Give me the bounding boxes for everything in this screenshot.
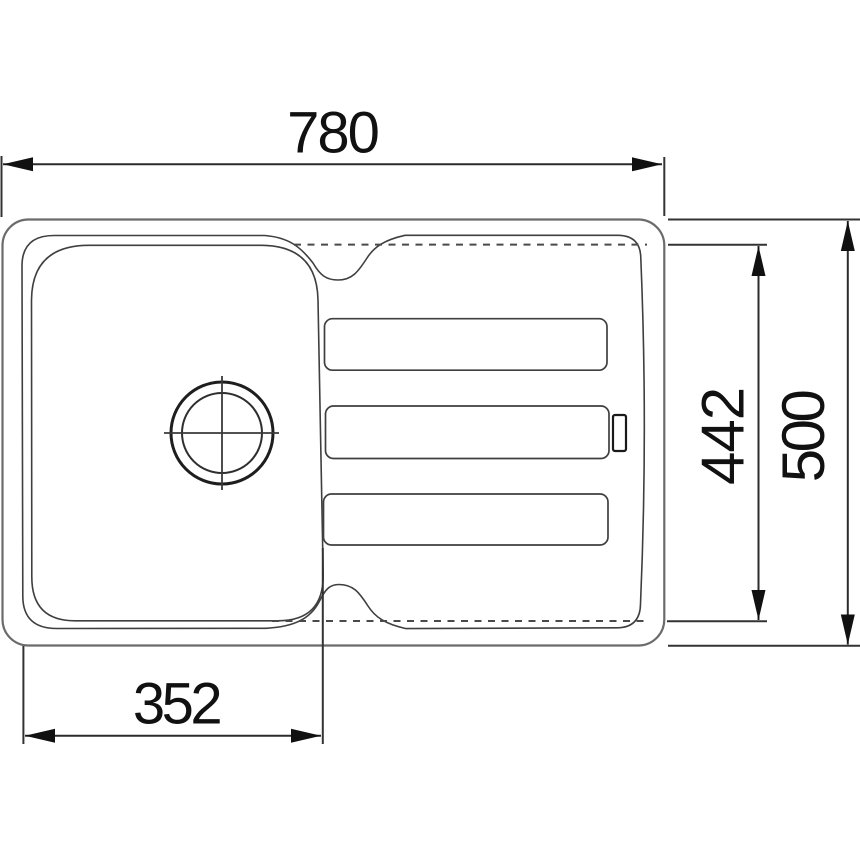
svg-text:780: 780 [287, 101, 378, 166]
svg-text:500: 500 [770, 391, 837, 483]
svg-text:442: 442 [689, 388, 756, 485]
svg-text:352: 352 [133, 672, 221, 737]
